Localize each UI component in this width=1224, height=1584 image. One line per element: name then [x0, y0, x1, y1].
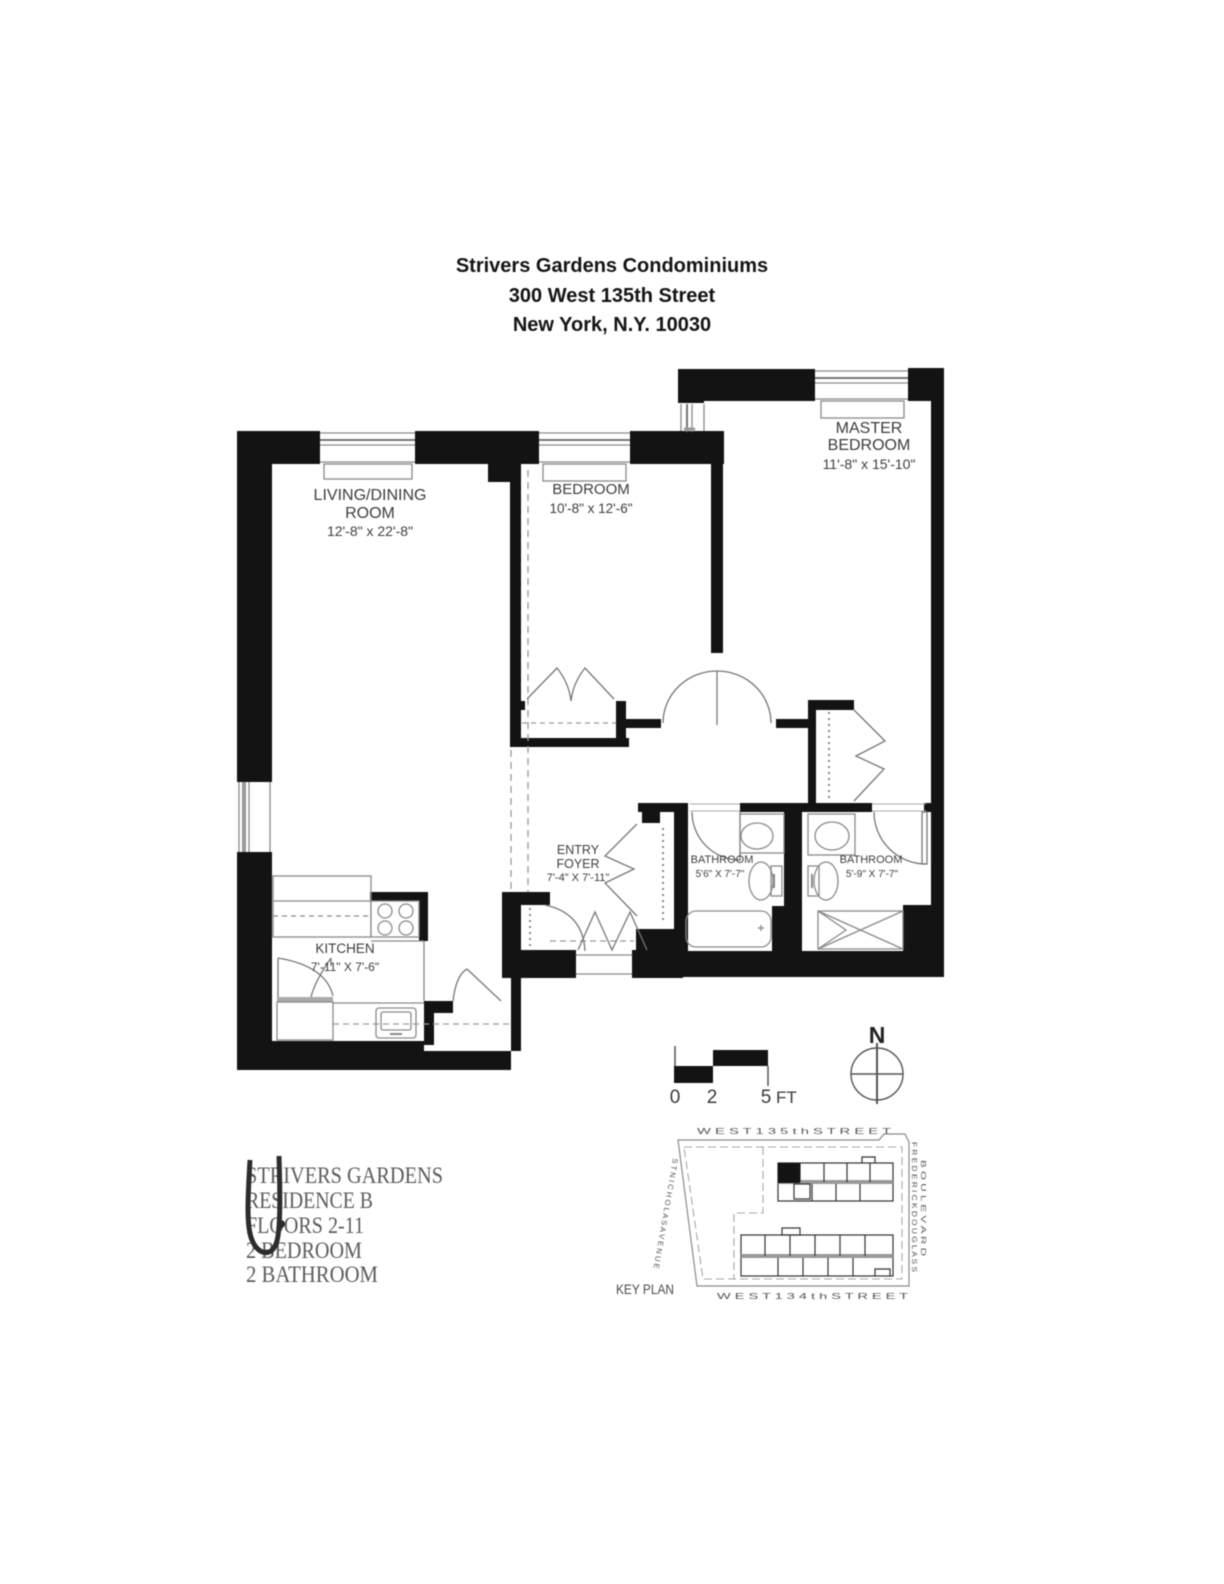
svg-text:W E S T 1 3 5 t h S T R E: W E S T 1 3 5 t h S T R E E T — [697, 1126, 891, 1136]
svg-text:ENTRY: ENTRY — [557, 843, 600, 857]
svg-text:B O U L E V A R D: B O U L E V A R D — [919, 1160, 928, 1257]
svg-text:RESIDENCE B: RESIDENCE B — [246, 1188, 373, 1213]
svg-text:W E S T 1 3 4 t h S T R E: W E S T 1 3 4 t h S T R E E T — [717, 1291, 908, 1301]
svg-text:MASTER: MASTER — [836, 420, 903, 437]
svg-text:BEDROOM: BEDROOM — [828, 437, 911, 454]
svg-text:7'-11" X 7'-6": 7'-11" X 7'-6" — [311, 960, 379, 974]
svg-text:STRIVERS GARDENS: STRIVERS GARDENS — [246, 1163, 443, 1188]
svg-text:S T N I C H O L A S A V E N: S T N I C H O L A S A V E N U E — [652, 1158, 680, 1270]
svg-text:5'-9" X 7'-7": 5'-9" X 7'-7" — [846, 869, 899, 880]
svg-text:BATHROOM: BATHROOM — [691, 854, 754, 866]
svg-text:KEY PLAN: KEY PLAN — [616, 1281, 674, 1297]
svg-text:0: 0 — [670, 1087, 681, 1108]
svg-text:11'-8" x 15'-10": 11'-8" x 15'-10" — [823, 456, 916, 472]
svg-text:FT: FT — [776, 1088, 797, 1107]
svg-text:ROOM: ROOM — [345, 505, 395, 522]
svg-text:FLOORS 2-11: FLOORS 2-11 — [246, 1213, 364, 1238]
svg-text:LIVING/DINING: LIVING/DINING — [314, 487, 427, 504]
svg-text:F R E D E R I C K D O U G L A: F R E D E R I C K D O U G L A S S — [910, 1142, 919, 1272]
svg-text:2 BATHROOM: 2 BATHROOM — [246, 1262, 378, 1287]
svg-text:N: N — [869, 1022, 886, 1048]
svg-text:5: 5 — [761, 1087, 772, 1108]
svg-text:BEDROOM: BEDROOM — [552, 481, 630, 498]
svg-text:12'-8" x 22'-8": 12'-8" x 22'-8" — [327, 523, 413, 539]
svg-text:10'-8" x 12'-6": 10'-8" x 12'-6" — [549, 501, 632, 516]
svg-text:7'-4" X 7'-11": 7'-4" X 7'-11" — [547, 872, 610, 884]
svg-text:2: 2 — [707, 1087, 718, 1108]
svg-text:KITCHEN: KITCHEN — [315, 941, 374, 956]
svg-text:BATHROOM: BATHROOM — [840, 854, 903, 866]
svg-text:FOYER: FOYER — [556, 857, 599, 871]
svg-text:5'6" X 7'-7": 5'6" X 7'-7" — [696, 869, 745, 880]
